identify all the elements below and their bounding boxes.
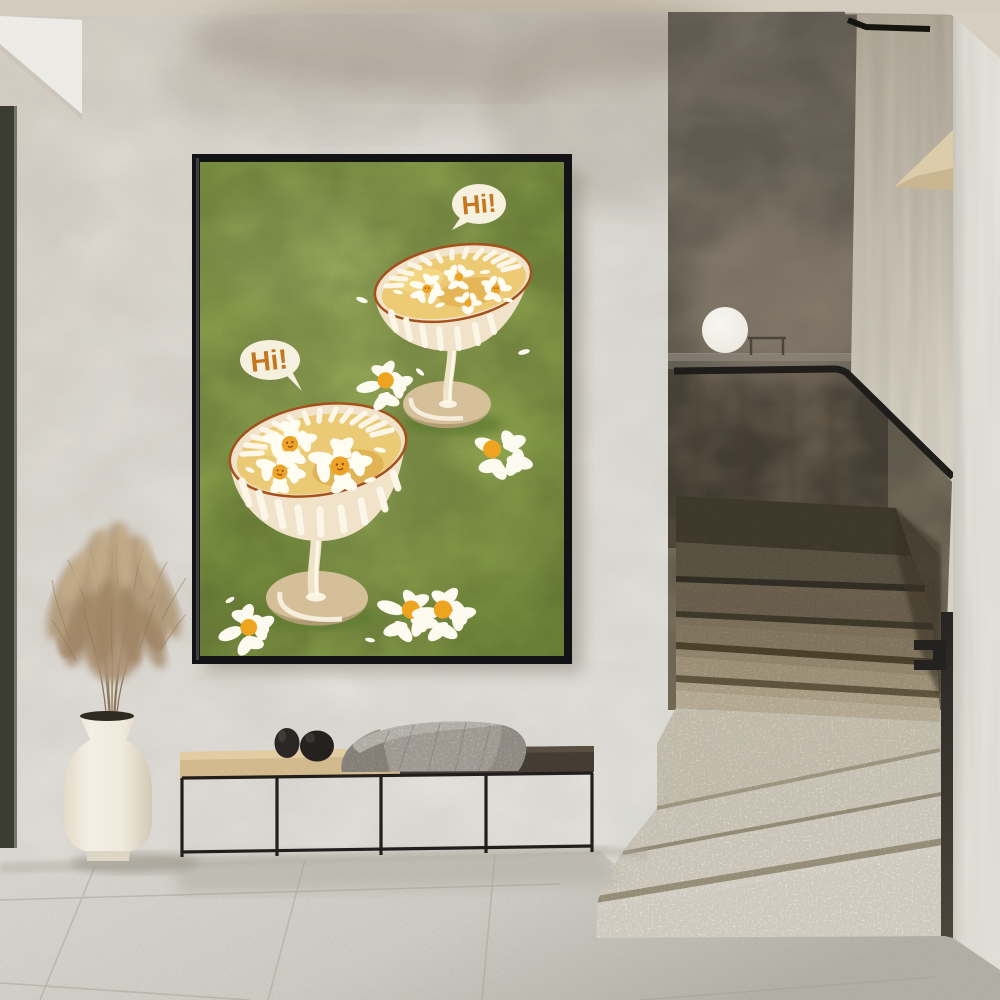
svg-text:Hi!: Hi! bbox=[460, 188, 497, 221]
svg-text:Hi!: Hi! bbox=[249, 343, 289, 378]
